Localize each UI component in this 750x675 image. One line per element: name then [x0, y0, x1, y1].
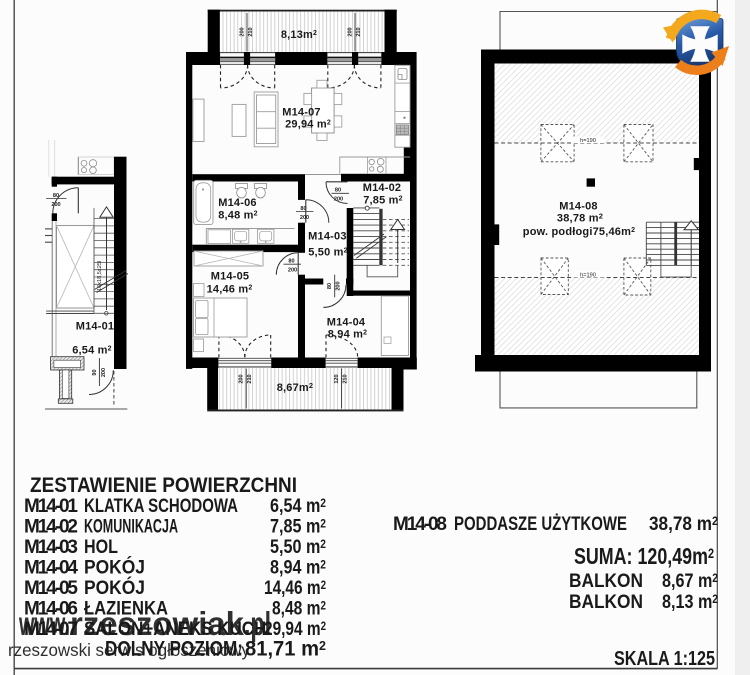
- svg-text:M14-02: M14-02: [24, 517, 78, 538]
- svg-text:M14-02: M14-02: [363, 182, 402, 194]
- svg-text:M14-04: M14-04: [327, 316, 366, 328]
- svg-text:200: 200: [288, 268, 297, 274]
- svg-text:38,78 m2: 38,78 m2: [649, 514, 718, 535]
- svg-text:7,85 m2: 7,85 m2: [363, 195, 403, 207]
- svg-text:14,46 m2: 14,46 m2: [207, 284, 253, 296]
- svg-text:POKÓJ: POKÓJ: [84, 557, 145, 579]
- svg-text:HOL: HOL: [84, 537, 118, 558]
- svg-text:M14-07: M14-07: [282, 106, 321, 118]
- svg-text:www.: www.: [18, 606, 70, 643]
- svg-text:200: 200: [336, 281, 342, 290]
- svg-text:ZESTAWIENIE POWIERZCHNI: ZESTAWIENIE POWIERZCHNI: [30, 473, 297, 497]
- svg-text:M14-08: M14-08: [559, 201, 598, 213]
- svg-text:200: 200: [300, 215, 309, 221]
- svg-text:210: 210: [342, 374, 348, 383]
- svg-text:6,54 m2: 6,54 m2: [270, 496, 326, 517]
- svg-text:7,85 m2: 7,85 m2: [270, 517, 326, 538]
- svg-text:38,78 m2: 38,78 m2: [557, 212, 603, 225]
- svg-text:8,13m2: 8,13m2: [281, 29, 317, 41]
- svg-text:KOMUNIKACJA: KOMUNIKACJA: [84, 517, 178, 538]
- svg-text:M14-03: M14-03: [24, 537, 78, 558]
- svg-text:80: 80: [300, 206, 306, 212]
- svg-text:pow. podłogi75,46m2: pow. podłogi75,46m2: [523, 226, 635, 238]
- svg-text:210: 210: [356, 27, 362, 36]
- svg-text:5,50 m2: 5,50 m2: [270, 537, 326, 558]
- svg-text:200: 200: [240, 27, 246, 36]
- svg-text:M14-01: M14-01: [76, 321, 115, 333]
- svg-text:14,46 m2: 14,46 m2: [264, 578, 326, 599]
- svg-text:5,50 m2: 5,50 m2: [308, 246, 348, 258]
- svg-text:8,13 m2: 8,13 m2: [662, 592, 718, 613]
- svg-text:80: 80: [327, 283, 333, 289]
- svg-text:BALKON: BALKON: [569, 592, 643, 613]
- svg-text:80: 80: [288, 258, 294, 264]
- svg-text:SUMA: 120,49m2: SUMA: 120,49m2: [574, 543, 714, 569]
- svg-text:200: 200: [51, 202, 60, 208]
- svg-text:200: 200: [334, 197, 343, 203]
- svg-text:M14-03: M14-03: [308, 230, 347, 242]
- svg-text:210: 210: [247, 374, 253, 383]
- svg-text:M14-05: M14-05: [211, 270, 250, 282]
- svg-text:.pl: .pl: [244, 606, 271, 643]
- svg-text:SKALA 1:125: SKALA 1:125: [614, 648, 715, 670]
- svg-text:h=190: h=190: [580, 273, 596, 279]
- svg-text:M14-05: M14-05: [24, 578, 78, 599]
- svg-text:POKÓJ: POKÓJ: [84, 577, 145, 599]
- svg-text:29,94 m2: 29,94 m2: [285, 119, 331, 131]
- svg-text:KLATKA SCHODOWA: KLATKA SCHODOWA: [84, 496, 238, 517]
- svg-text:8,94 m2: 8,94 m2: [270, 558, 326, 579]
- svg-text:8,94 m2: 8,94 m2: [328, 329, 368, 341]
- svg-text:8,48 m2: 8,48 m2: [218, 209, 258, 221]
- svg-text:16x18,5x25l: 16x18,5x25l: [97, 261, 103, 291]
- svg-text:8,48 m2: 8,48 m2: [272, 599, 326, 620]
- svg-text:200: 200: [348, 27, 354, 36]
- svg-text:6,54 m2: 6,54 m2: [72, 345, 112, 357]
- svg-text:M14-01: M14-01: [24, 496, 78, 517]
- svg-text:200: 200: [239, 374, 245, 383]
- svg-text:BALKON: BALKON: [569, 571, 643, 592]
- svg-text:200: 200: [101, 368, 107, 377]
- svg-text:8,67 m2: 8,67 m2: [662, 571, 718, 592]
- svg-text:h=190: h=190: [580, 138, 596, 144]
- svg-text:120: 120: [334, 374, 340, 383]
- svg-text:M14-08: M14-08: [393, 514, 447, 535]
- svg-text:90: 90: [92, 369, 98, 375]
- svg-text:rzeszowiak: rzeszowiak: [70, 606, 244, 643]
- svg-text:M14-04: M14-04: [24, 558, 78, 579]
- svg-text:PODDASZE UŻYTKOWE: PODDASZE UŻYTKOWE: [454, 514, 627, 535]
- svg-text:rzeszowski serwis ogłoszeniowy: rzeszowski serwis ogłoszeniowy: [8, 640, 250, 660]
- svg-text:8,67m2: 8,67m2: [277, 381, 314, 394]
- svg-text:M14-06: M14-06: [218, 197, 257, 209]
- svg-text:210: 210: [248, 27, 254, 36]
- svg-text:80: 80: [335, 188, 341, 194]
